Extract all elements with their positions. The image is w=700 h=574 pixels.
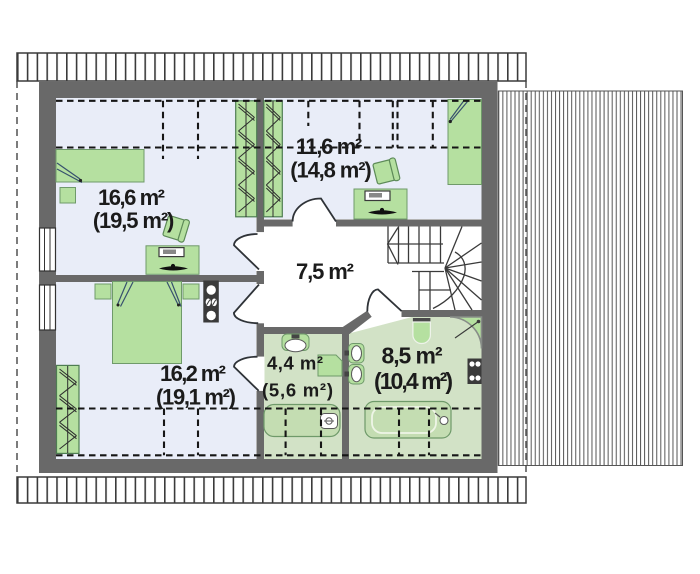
svg-text:11,6 m²: 11,6 m² xyxy=(296,134,363,159)
svg-text:(5,6 m²): (5,6 m²) xyxy=(262,380,333,401)
svg-text:16,6 m²: 16,6 m² xyxy=(98,185,165,210)
svg-text:16,2 m²: 16,2 m² xyxy=(160,361,226,386)
svg-text:4,4 m²: 4,4 m² xyxy=(267,353,323,374)
svg-text:8,5 m²: 8,5 m² xyxy=(382,343,443,369)
svg-text:7,5 m²: 7,5 m² xyxy=(296,259,354,284)
svg-text:(19,1 m²): (19,1 m²) xyxy=(156,385,236,410)
svg-text:(14,8 m²): (14,8 m²) xyxy=(290,158,372,183)
svg-text:(19,5 m²): (19,5 m²) xyxy=(93,208,175,233)
svg-text:(10,4 m²): (10,4 m²) xyxy=(374,368,453,394)
